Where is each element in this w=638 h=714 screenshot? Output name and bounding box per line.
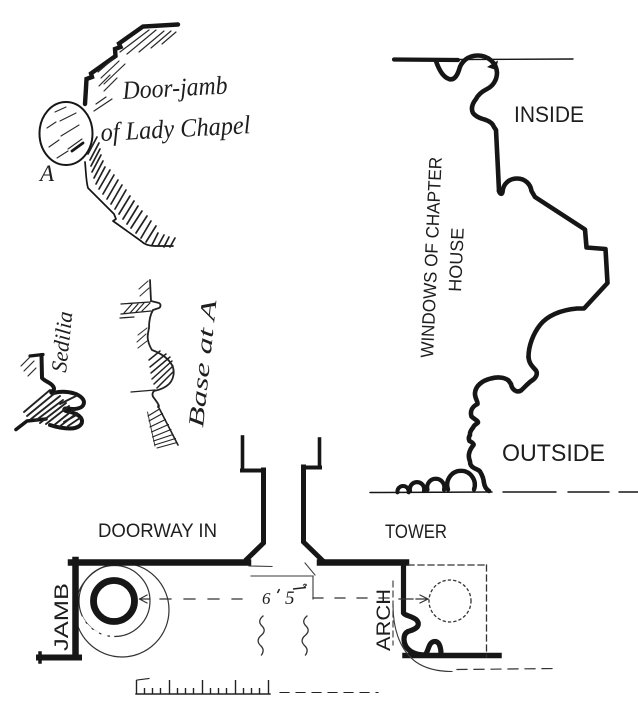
svg-text:OUTSIDE: OUTSIDE <box>502 440 605 467</box>
svg-text:6: 6 <box>262 589 271 608</box>
svg-text:INSIDE: INSIDE <box>514 102 584 127</box>
svg-text:JAMB: JAMB <box>52 583 73 651</box>
svg-text:ARCH: ARCH <box>374 589 395 651</box>
svg-text:TOWER: TOWER <box>385 522 447 543</box>
svg-text:5: 5 <box>285 588 295 609</box>
svg-text:Door-jamb: Door-jamb <box>121 71 228 106</box>
svg-text:A: A <box>38 161 55 186</box>
svg-text:HOUSE: HOUSE <box>445 227 468 292</box>
svg-text:DOORWAY IN: DOORWAY IN <box>98 521 217 542</box>
